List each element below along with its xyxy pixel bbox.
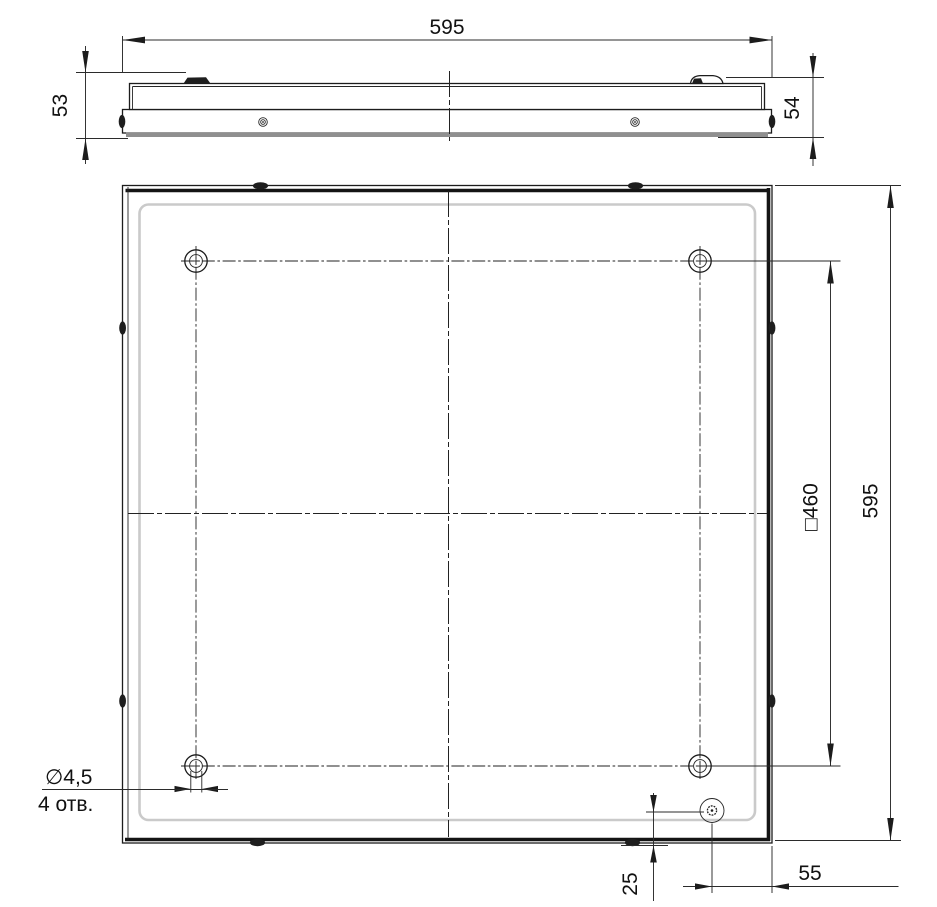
- tab-bottom-left: [250, 839, 265, 846]
- latch-bump-left: [119, 115, 126, 128]
- dim-mounting-square: □460: [800, 261, 834, 766]
- dim-plan-height: 595: [775, 186, 901, 841]
- dim-offset-bottom-label: 25: [619, 872, 642, 895]
- side-view-body: [119, 71, 776, 141]
- diffuser-edge-band: [126, 133, 768, 137]
- latch-bump-right: [769, 115, 776, 128]
- dim-side-width-label: 595: [429, 16, 464, 39]
- technical-drawing-canvas: 595: [0, 0, 937, 907]
- dim-mounting-square-label: □460: [800, 483, 823, 531]
- dim-plan-height-label: 595: [860, 483, 883, 518]
- plan-frame: [123, 186, 773, 844]
- dim-side-height-right-label: 54: [781, 96, 804, 120]
- arrowhead-right: [750, 37, 773, 44]
- hole-callout-diameter-label: ∅4,5: [45, 766, 93, 789]
- tab-left-upper: [119, 321, 126, 334]
- hole-callout-count-label: 4 отв.: [38, 793, 93, 816]
- side-view: 595: [49, 16, 824, 166]
- dim-side-height-left-label: 53: [49, 94, 72, 117]
- tab-top-left: [253, 182, 268, 189]
- tab-right-upper: [769, 321, 776, 334]
- dim-offset-right-label: 55: [798, 862, 821, 885]
- tab-right-lower: [769, 694, 776, 707]
- clip-left: [184, 77, 211, 83]
- tab-left-lower: [119, 694, 126, 707]
- dim-side-width: 595: [123, 16, 773, 78]
- tab-top-right: [628, 182, 643, 189]
- arrowhead-left: [123, 37, 146, 44]
- drawing-sheet: 595: [0, 0, 937, 907]
- plan-view: 595 □460 ∅4,5 4 отв. 25: [38, 182, 901, 901]
